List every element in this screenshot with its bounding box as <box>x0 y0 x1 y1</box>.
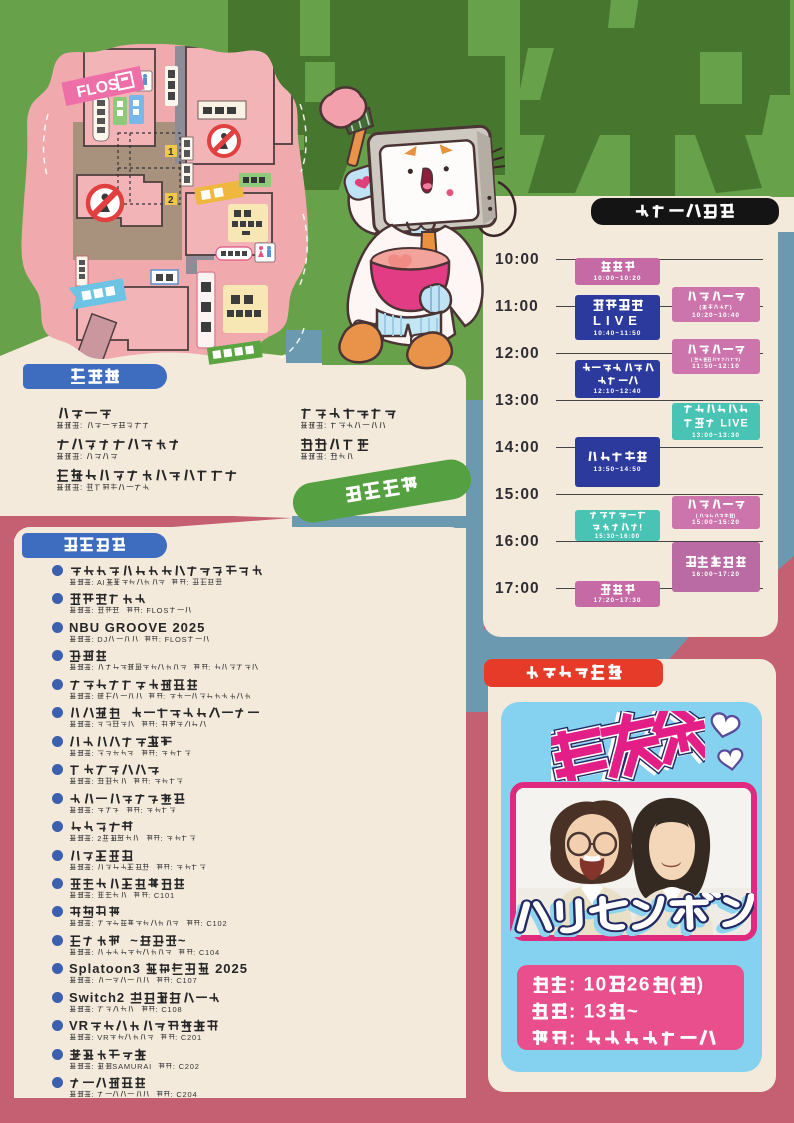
svg-text:1: 1 <box>168 147 174 158</box>
svg-text:2: 2 <box>168 195 174 206</box>
